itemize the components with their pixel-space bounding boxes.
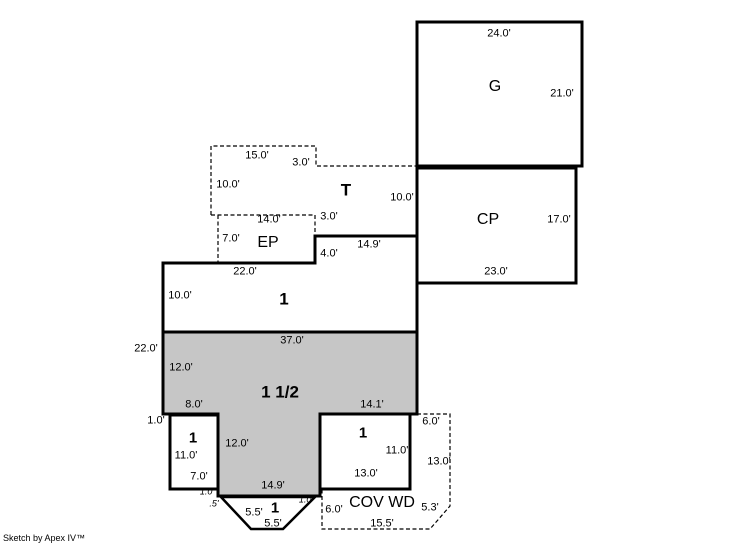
cov-wd-dim-right: 13.0' <box>427 457 451 468</box>
bay-dim-diag-left: 5.5' <box>245 508 262 519</box>
carport-label: CP <box>477 212 499 228</box>
terrace-dim-top: 15.0' <box>245 151 269 162</box>
porch-label: EP <box>257 235 278 251</box>
bay-dim-step-top: 1.0' <box>200 488 214 497</box>
porch-dim-top: 14.0' <box>257 215 281 226</box>
half-story-dim-col-bottom: 14.9' <box>261 481 285 492</box>
room-left-dim-offset: 1.0' <box>147 416 164 427</box>
half-story-dim-col-left: 12.0' <box>225 439 249 450</box>
terrace-dim-right: 10.0' <box>390 193 414 204</box>
carport-dim-right: 17.0' <box>547 215 571 226</box>
first-floor-dim-step: 4.0' <box>320 249 337 260</box>
room-left-label: 1 <box>189 431 197 446</box>
cov-wd-dim-left: 6.0' <box>325 505 342 516</box>
sketch-credit: Sketch by Apex IV™ <box>3 534 85 543</box>
bay-label: 1 <box>271 501 279 516</box>
room-right-dim-right: 11.0' <box>386 446 409 457</box>
floorplan-sketch: 24.0' G 21.0' CP 17.0' 23.0' 15.0' 3.0' … <box>0 0 746 547</box>
first-floor-dim-top-right: 14.9' <box>357 240 381 251</box>
half-story-dim-bottom-left: 8.0' <box>185 400 202 411</box>
porch-dim-left: 7.0' <box>222 234 239 245</box>
carport-dim-bottom: 23.0' <box>484 267 508 278</box>
cov-wd-dim-diag: 5.3' <box>421 503 438 514</box>
half-story-dim-outer-left: 22.0' <box>134 344 158 355</box>
half-story-dim-left: 12.0' <box>169 363 193 374</box>
cov-wd-label: COV WD <box>349 495 415 511</box>
room-right-dim-bottom: 13.0' <box>354 469 378 480</box>
terrace-dim-top-step: 3.0' <box>292 158 309 169</box>
first-floor-label: 1 <box>279 291 288 308</box>
room-left-dim-bottom: 7.0' <box>190 472 207 483</box>
cov-wd-dim-bottom: 15.5' <box>370 519 394 530</box>
terrace-label: T <box>341 182 351 199</box>
bay-dim-step-left: .5' <box>209 500 218 509</box>
terrace-dim-left: 10.0' <box>216 180 240 191</box>
cov-wd-dim-top: 6.0' <box>422 417 439 428</box>
bay-dim-step-right: 1.0' <box>299 496 313 505</box>
half-story-dim-bottom-right: 14.1' <box>360 400 384 411</box>
room-left-dim-left: 11.0' <box>175 451 198 462</box>
garage-dim-top: 24.0' <box>487 29 511 40</box>
first-floor-dim-left: 10.0' <box>168 291 192 302</box>
floorplan-linework <box>0 0 746 547</box>
first-floor-dim-top: 22.0' <box>233 267 257 278</box>
garage-label: G <box>489 79 501 95</box>
room-right-label: 1 <box>359 426 367 441</box>
half-story-label: 1 1/2 <box>261 384 299 401</box>
porch-dim-right: 3.0' <box>320 212 337 223</box>
half-story-dim-top: 37.0' <box>280 336 304 347</box>
garage-dim-right: 21.0' <box>550 89 574 100</box>
bay-dim-bottom: 5.5' <box>264 519 281 530</box>
